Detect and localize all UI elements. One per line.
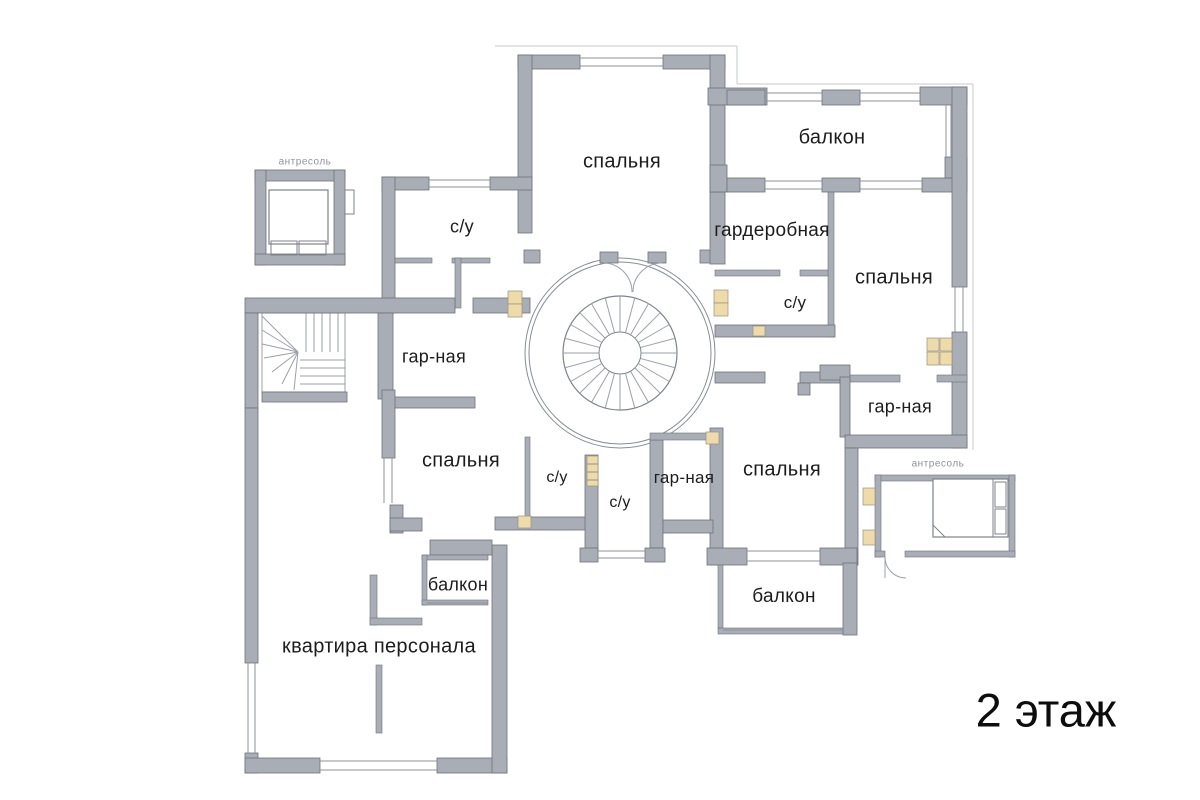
room-label-mezzanine-right: антресоль — [912, 459, 965, 470]
room-label-bedroom-top: спальня — [583, 151, 661, 174]
room-label-wardrobe-right: гардеробная — [714, 220, 830, 242]
room-label-mezzanine-left: антресоль — [279, 157, 332, 168]
room-label-bathroom-left-top: с/у — [450, 217, 474, 238]
labels-layer: спальнябалконгардеробнаяс/успальнягар-на… — [0, 0, 1200, 800]
room-label-bedroom-right: спальня — [855, 267, 933, 290]
room-label-balcony-top-right: балкон — [799, 127, 866, 150]
room-label-dressing-center: гар-ная — [654, 468, 715, 488]
room-label-dressing-left: гар-ная — [402, 347, 466, 368]
room-label-bathroom-right: с/у — [784, 293, 807, 313]
floor-title: 2 этаж — [976, 683, 1117, 738]
room-label-dressing-right: гар-ная — [868, 397, 932, 418]
room-label-balcony-bottom-right: балкон — [752, 586, 816, 608]
room-label-balcony-bottom-left: балкон — [428, 575, 488, 596]
room-label-bathroom-center-2: с/у — [609, 494, 630, 512]
room-label-bathroom-center-1: с/у — [546, 469, 567, 487]
room-label-staff-apartment: квартира персонала — [282, 636, 476, 659]
room-label-bedroom-bottom-right: спальня — [743, 459, 821, 482]
floor-plan-page: спальнябалконгардеробнаяс/успальнягар-на… — [0, 0, 1200, 800]
room-label-bedroom-left: спальня — [422, 450, 500, 473]
